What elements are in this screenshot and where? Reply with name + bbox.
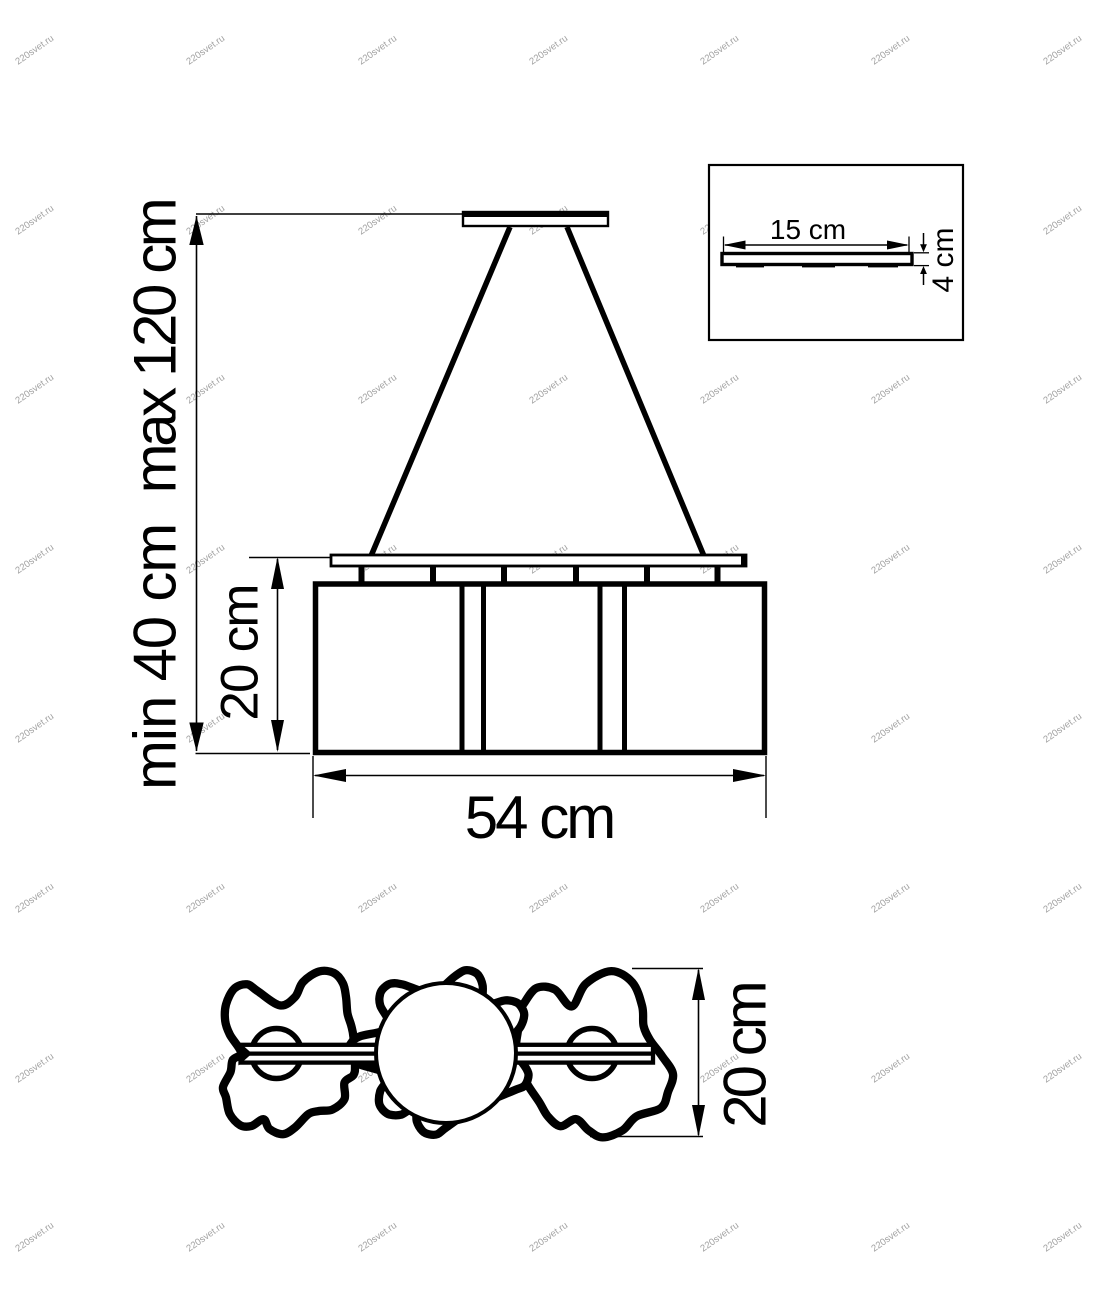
svg-text:min 40 cm: min 40 cm	[122, 524, 189, 790]
svg-text:20 cm: 20 cm	[712, 983, 779, 1127]
svg-text:max 120 cm: max 120 cm	[122, 200, 189, 493]
svg-text:54 cm: 54 cm	[465, 784, 613, 851]
svg-text:4 cm: 4 cm	[927, 227, 960, 292]
svg-text:20 cm: 20 cm	[211, 585, 270, 720]
svg-text:15 cm: 15 cm	[770, 214, 846, 245]
